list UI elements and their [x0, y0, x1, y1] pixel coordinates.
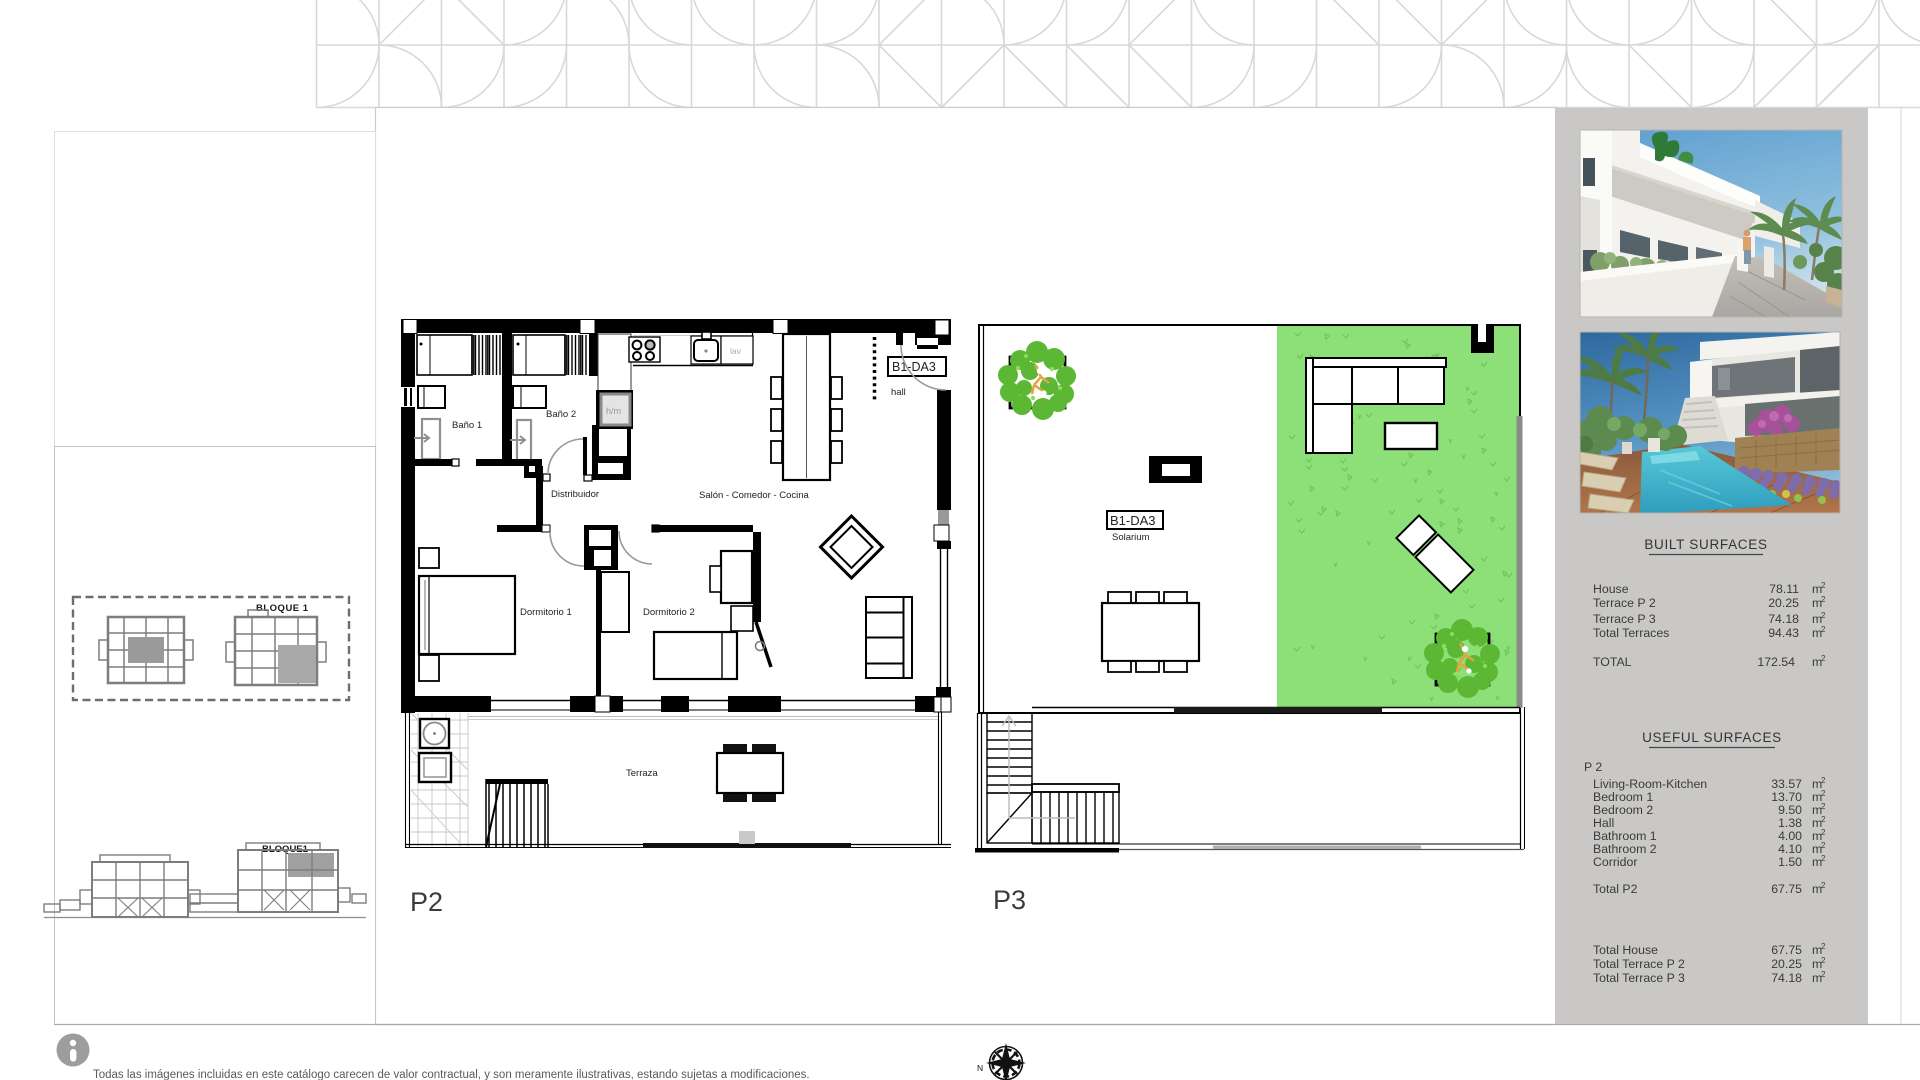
svg-text:2: 2 [1821, 841, 1826, 850]
svg-text:Dormitorio 2: Dormitorio 2 [643, 607, 695, 618]
svg-text:Distribuidor: Distribuidor [551, 489, 599, 500]
svg-text:Baño 1: Baño 1 [452, 420, 482, 431]
svg-text:2: 2 [1821, 854, 1826, 863]
svg-text:lav: lav [730, 346, 742, 356]
svg-text:Corridor: Corridor [1593, 855, 1637, 869]
svg-text:Bathroom 1: Bathroom 1 [1593, 829, 1657, 843]
svg-text:P 2: P 2 [1584, 760, 1602, 774]
svg-text:2: 2 [1821, 625, 1826, 634]
svg-text:Todas las imágenes incluidas e: Todas las imágenes incluidas en este cat… [93, 1069, 810, 1080]
svg-text:13.70: 13.70 [1771, 790, 1802, 804]
svg-text:1.50: 1.50 [1778, 855, 1802, 869]
svg-text:BUILT SURFACES: BUILT SURFACES [1644, 537, 1767, 552]
svg-text:2: 2 [1821, 970, 1826, 979]
svg-text:2: 2 [1821, 802, 1826, 811]
svg-text:2: 2 [1821, 581, 1826, 590]
svg-text:2: 2 [1821, 942, 1826, 951]
svg-text:Living-Room-Kitchen: Living-Room-Kitchen [1593, 777, 1707, 791]
svg-text:Terraza: Terraza [626, 768, 658, 779]
svg-text:33.57: 33.57 [1771, 777, 1802, 791]
svg-text:2: 2 [1821, 881, 1826, 890]
svg-text:94.43: 94.43 [1768, 626, 1799, 640]
svg-text:B1-DA3: B1-DA3 [892, 360, 936, 374]
svg-text:9.50: 9.50 [1778, 803, 1802, 817]
svg-text:Total Terraces: Total Terraces [1593, 626, 1669, 640]
svg-text:Bedroom 2: Bedroom 2 [1593, 803, 1653, 817]
svg-text:4.00: 4.00 [1778, 829, 1802, 843]
svg-text:20.25: 20.25 [1771, 957, 1802, 971]
svg-text:74.18: 74.18 [1768, 612, 1799, 626]
svg-text:TOTAL: TOTAL [1593, 655, 1632, 669]
svg-text:2: 2 [1821, 654, 1826, 663]
svg-text:P2: P2 [410, 887, 443, 917]
svg-text:Baño 2: Baño 2 [546, 409, 576, 420]
svg-text:Terrace P 3: Terrace P 3 [1593, 612, 1656, 626]
svg-text:74.18: 74.18 [1771, 971, 1802, 985]
svg-text:Bathroom 2: Bathroom 2 [1593, 842, 1657, 856]
svg-text:67.75: 67.75 [1771, 943, 1802, 957]
svg-text:Solarium: Solarium [1112, 532, 1150, 543]
svg-text:2: 2 [1821, 595, 1826, 604]
svg-text:Terrace P 2: Terrace P 2 [1593, 596, 1656, 610]
svg-text:67.75: 67.75 [1771, 882, 1802, 896]
svg-text:172.54: 172.54 [1757, 655, 1795, 669]
svg-text:USEFUL SURFACES: USEFUL SURFACES [1642, 730, 1782, 745]
svg-text:Salón - Comedor - Cocina: Salón - Comedor - Cocina [699, 490, 810, 501]
svg-text:2: 2 [1821, 828, 1826, 837]
svg-text:B1-DA3: B1-DA3 [1110, 513, 1156, 528]
svg-text:Dormitorio 1: Dormitorio 1 [520, 607, 572, 618]
svg-text:78.11: 78.11 [1769, 582, 1799, 596]
svg-text:Bedroom 1: Bedroom 1 [1593, 790, 1653, 804]
svg-text:2: 2 [1821, 776, 1826, 785]
svg-text:1.38: 1.38 [1778, 816, 1802, 830]
svg-text:2: 2 [1821, 789, 1826, 798]
svg-text:Total Terrace P 2: Total Terrace P 2 [1593, 957, 1685, 971]
svg-text:P3: P3 [993, 885, 1026, 915]
svg-text:Hall: Hall [1593, 816, 1614, 830]
svg-text:2: 2 [1821, 611, 1826, 620]
svg-text:N: N [977, 1063, 983, 1073]
svg-text:h/m: h/m [606, 406, 621, 416]
svg-text:2: 2 [1821, 815, 1826, 824]
svg-text:Total Terrace P 3: Total Terrace P 3 [1593, 971, 1685, 985]
svg-text:BLOQUE 1: BLOQUE 1 [256, 603, 309, 614]
svg-text:4.10: 4.10 [1778, 842, 1802, 856]
svg-text:Total P2: Total P2 [1593, 882, 1638, 896]
svg-text:20.25: 20.25 [1768, 596, 1799, 610]
svg-text:2: 2 [1821, 956, 1826, 965]
svg-text:hall: hall [891, 387, 906, 398]
svg-text:House: House [1593, 582, 1629, 596]
svg-text:Total House: Total House [1593, 943, 1658, 957]
